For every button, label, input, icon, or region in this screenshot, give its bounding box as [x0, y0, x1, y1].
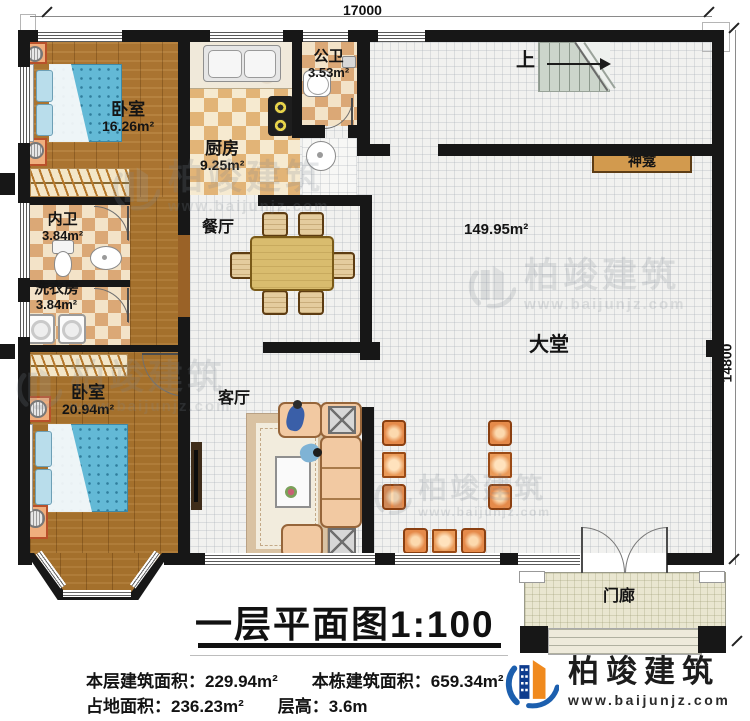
wall-top-seg [425, 30, 724, 42]
porch-post-right [698, 626, 726, 653]
brand-name: 柏竣建筑 [568, 656, 730, 687]
door-leaf-laundry [127, 288, 129, 322]
room-name: 餐厅 [202, 219, 234, 236]
wall-right-pilaster [706, 340, 724, 357]
hall-tea-table [488, 452, 512, 478]
porch-sill-right [699, 571, 725, 583]
dining-table [250, 236, 334, 291]
stairs-arrow-head [600, 58, 611, 70]
room-name: 洗衣房 [34, 280, 79, 297]
dim-top-label: 17000 [343, 2, 382, 18]
room-name: 门廊 [603, 588, 635, 605]
room-label-porch: 门廊 [603, 588, 635, 606]
title-underline-thick [198, 643, 501, 648]
corridor-floor [130, 197, 178, 345]
room-label-private-bath: 内卫 3.84m² [42, 212, 83, 243]
dining-chair [298, 212, 324, 237]
room-area: 3.84m² [34, 298, 79, 313]
wall-public-bath-right [357, 42, 370, 156]
wall-bottom-seg [500, 553, 518, 565]
room-label-bedroom2: 卧室 20.94m² [62, 383, 114, 418]
title-text: 一层平面图 [195, 604, 390, 645]
dim-tick [731, 635, 742, 646]
washing-machine [58, 314, 86, 344]
wardrobe-bedroom1 [30, 168, 130, 197]
wall-laundry-bedroom2 [30, 345, 190, 352]
drawing-title: 一层平面图1:100 [195, 594, 495, 648]
wall-top-seg [348, 30, 378, 42]
washing-machine [27, 314, 55, 344]
window-top-bath [303, 30, 348, 42]
round-basin-drain [317, 152, 323, 158]
room-label-kitchen: 厨房 9.25m² [200, 139, 244, 174]
window-top-bedroom1 [38, 30, 122, 42]
room-name: 大堂 [529, 334, 569, 356]
room-area: 20.94m² [62, 402, 114, 418]
wall-public-bath-bottom2 [348, 125, 370, 138]
hall-tea-table [382, 452, 406, 478]
dim-line-right [735, 30, 736, 565]
person-figure-head [293, 400, 302, 409]
wall-right [712, 30, 724, 565]
dining-chair [262, 212, 288, 237]
dining-chair [331, 252, 355, 279]
side-table [328, 528, 356, 556]
wall-left-seg [18, 143, 30, 203]
shrine-label: 神龛 [628, 154, 656, 170]
room-area-hall: 149.95m² [464, 222, 528, 239]
wall-shrine-stub [357, 144, 390, 156]
door-leaf-private-bath [127, 206, 129, 240]
room-name: 厨房 [205, 139, 239, 158]
stats-line1: 本层建筑面积：229.94m²本栋建筑面积：659.34m² [86, 667, 504, 692]
wall-left-seg [18, 278, 30, 302]
wall-dining-right [360, 195, 372, 360]
dim-tick [728, 553, 739, 564]
bath-sink-drain [102, 255, 107, 260]
wall-top-seg [283, 30, 303, 42]
person-figure-head [313, 448, 322, 457]
window-bottom-hall2 [518, 553, 580, 565]
floor-area-value: 229.94m² [205, 672, 278, 691]
wall-stub-left1 [0, 173, 15, 195]
door-panel-corridor [178, 235, 190, 317]
building-area-label: 本栋建筑面积： [312, 672, 431, 691]
wall-stub-left2 [0, 344, 15, 359]
door-leaf-entry-right [666, 527, 668, 573]
porch-steps [548, 628, 702, 655]
wall-dining-top [258, 195, 372, 206]
room-area: 149.95m² [464, 221, 528, 238]
brand-logo: 柏竣建筑 www.baijunjz.com [505, 652, 730, 712]
toilet-bowl [54, 251, 72, 277]
window-left-laundry [18, 302, 30, 337]
kitchen-sink-basin [208, 50, 242, 78]
room-name: 卧室 [111, 100, 145, 119]
bed2-pillow [35, 469, 52, 505]
kitchen-sink-basin [244, 50, 276, 78]
building-area-value: 659.34m² [431, 672, 504, 691]
room-name: 客厅 [218, 390, 250, 407]
bed2-pillow [35, 431, 52, 467]
wall-living-right [362, 407, 374, 553]
bay-window-pane-bottom [63, 590, 131, 597]
coffee-table-flowers [285, 486, 297, 498]
door-leaf-public-bath [351, 98, 353, 128]
room-area: 16.26m² [102, 119, 154, 135]
window-left-private-bath [18, 203, 30, 278]
wall-bottom-seg [667, 553, 724, 565]
bed1-pillow [36, 70, 53, 102]
room-area: 9.25m² [200, 158, 244, 174]
porch-sill-left [519, 571, 545, 583]
hall-tea-table [432, 529, 457, 553]
room-label-bedroom1: 卧室 16.26m² [102, 100, 154, 135]
title-scale: 1:100 [390, 604, 495, 645]
stove-burner [274, 119, 287, 132]
room-name: 卧室 [71, 383, 105, 402]
hall-chair [488, 420, 512, 446]
hall-chair [382, 484, 406, 510]
brand-url: www.baijunjz.com [568, 692, 730, 708]
stove-burner [274, 101, 287, 114]
room-name: 内卫 [48, 211, 78, 228]
bed1-pillow [36, 104, 53, 136]
title-underline-thin [190, 655, 508, 656]
wall-kitchen-bath [292, 42, 302, 138]
window-left-bedroom1 [18, 67, 30, 143]
height-value: 3.6m [329, 697, 368, 716]
door-leaf-entry-left [581, 527, 583, 573]
room-area: 3.84m² [42, 229, 83, 244]
wall-left-seg [18, 337, 30, 553]
room-label-public-bath: 公卫 3.53m² [308, 49, 349, 80]
brand-logo-icon [505, 652, 559, 712]
floorplan-page: { "plan": { "dim_top": "17000", "dim_rig… [0, 0, 750, 721]
wall-wardrobe1 [30, 197, 130, 205]
hall-chair [488, 484, 512, 510]
footprint-value: 236.23m² [171, 697, 244, 716]
wall-bottom-seg [18, 553, 32, 565]
wall-dining-corner [360, 342, 380, 360]
stairs-up-label: 上 [516, 50, 535, 71]
porch-post-left [520, 626, 548, 653]
stairs-arrow [547, 63, 602, 65]
room-label-dining: 餐厅 [202, 219, 234, 237]
wall-bottom-seg [375, 553, 395, 565]
side-table [328, 406, 356, 434]
window-bottom-hall1 [395, 553, 500, 565]
tv [194, 450, 198, 502]
coffee-table [275, 456, 311, 508]
room-area: 3.53m² [308, 66, 349, 81]
hall-chair [461, 528, 486, 554]
dining-chair [298, 290, 324, 315]
dining-chair [262, 290, 288, 315]
room-label-hall: 大堂 [529, 334, 569, 356]
hall-chair [382, 420, 406, 446]
room-label-living: 客厅 [218, 390, 250, 408]
height-label: 层高： [278, 697, 329, 716]
floor-area-label: 本层建筑面积： [86, 672, 205, 691]
wall-left-seg [18, 30, 30, 67]
window-top-hall [378, 30, 425, 42]
wardrobe-bedroom2 [30, 354, 128, 377]
hall-chair [403, 528, 428, 554]
sofa-right-seats [320, 436, 362, 528]
wall-shrine [438, 144, 724, 156]
room-label-laundry: 洗衣房 3.84m² [34, 281, 79, 312]
wall-top-seg [122, 30, 210, 42]
window-top-kitchen [210, 30, 283, 42]
wall-public-bath-bottom1 [302, 125, 325, 138]
room-name: 公卫 [314, 48, 344, 65]
dim-tick [728, 22, 739, 33]
footprint-label: 占地面积： [86, 697, 171, 716]
wall-bottom-seg [164, 553, 205, 565]
window-bottom-living [205, 553, 375, 565]
stats-line2: 占地面积：236.23m²层高：3.6m [86, 692, 368, 717]
